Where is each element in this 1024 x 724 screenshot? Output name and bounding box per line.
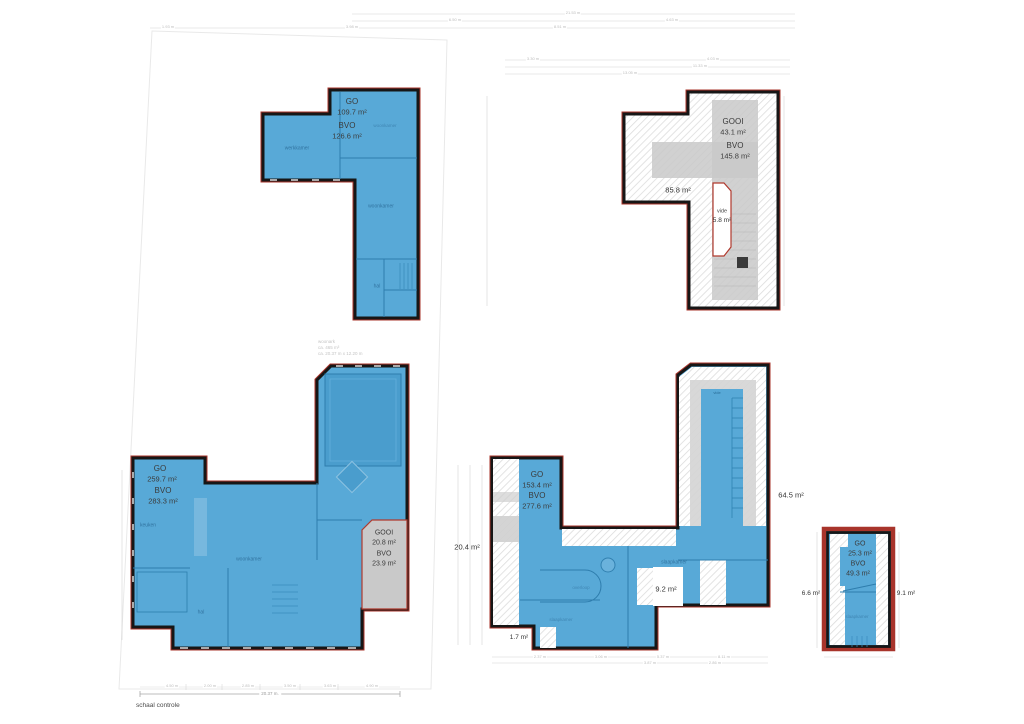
p3-bvo-value: 283.3 m² xyxy=(148,497,178,505)
dim-label: 8.51 m xyxy=(553,25,567,29)
p5-area-right: 9.1 m² xyxy=(897,591,915,598)
dim-label: 6.50 m xyxy=(448,18,462,22)
sloped-roof-strip xyxy=(876,534,888,645)
p3-go-label: GO xyxy=(154,465,166,473)
dim-label: 3.87 m xyxy=(643,661,657,665)
dim-label: 2.37 m xyxy=(533,655,547,659)
p4-room-slaapkamer-l: slaapkamer xyxy=(549,618,572,623)
dim-label: 3.30 m xyxy=(526,57,540,61)
dim-label: 11.33 m xyxy=(692,64,708,68)
p3-room-woonkamer: woonkamer xyxy=(236,558,262,563)
p1-room-hal: hal xyxy=(374,285,381,290)
p4-bvo-label: BVO xyxy=(529,492,546,500)
dim-label: 2.86 m xyxy=(708,661,722,665)
p4-bvo-value: 277.6 m² xyxy=(522,502,552,510)
p5-room-slaapkamer: slaapkamer xyxy=(845,615,868,620)
scale-segment-label: 3.63 m xyxy=(323,684,337,688)
dim-label: 4.63 m xyxy=(665,18,679,22)
p3-bvo-label: BVO xyxy=(155,487,172,495)
p1-room-werkkamer: werkkamer xyxy=(285,147,309,152)
p4-area-bottom: 1.7 m² xyxy=(510,635,528,642)
scale-segment-label: 4.50 m xyxy=(165,684,179,688)
p1-room-woonkamer: woonkamer xyxy=(368,205,394,210)
p2-vide-value: 5.8 m² xyxy=(713,218,731,225)
kitchen-island xyxy=(194,498,207,556)
p2-bvo-label: BVO xyxy=(727,142,744,150)
p3-note-2: ca. 465 m³ xyxy=(318,346,339,351)
dim-label: 21.53 m xyxy=(565,11,581,15)
p1-go-label: GO xyxy=(346,98,358,106)
p3-gooi-label: GOOI xyxy=(375,530,393,537)
p4-area-left: 20.4 m² xyxy=(454,543,479,551)
p3-go-value: 259.7 m² xyxy=(147,475,177,483)
floor-plan-3 xyxy=(133,366,407,648)
scale-total-label: 20.37 m. xyxy=(259,692,281,697)
chimney xyxy=(737,257,748,268)
p3-gooi-bvo-value: 23.9 m² xyxy=(372,561,396,568)
dim-label: 5.37 m xyxy=(656,655,670,659)
p3-room-keuken: keuken xyxy=(140,524,156,529)
p5-go-value: 25.3 m² xyxy=(848,551,872,558)
p3-gooi-bvo-label: BVO xyxy=(377,551,392,558)
p1-bvo-label: BVO xyxy=(339,122,356,130)
floorplan-sheet: GO 109.7 m² BVO 126.6 m² woonkamer werkk… xyxy=(0,0,1024,724)
p5-area-left: 6.6 m² xyxy=(802,591,820,598)
floor-plan-2 xyxy=(624,92,778,308)
p4-room-slaapkamer-r: slaapkamer xyxy=(661,561,687,566)
p2-bvo-value: 145.8 m² xyxy=(720,152,750,160)
p3-gooi-value: 20.8 m² xyxy=(372,540,396,547)
p1-bvo-value: 126.6 m² xyxy=(332,132,362,140)
p4-room-overloop: overloop xyxy=(572,586,589,591)
p2-gooi-label: GOOI xyxy=(723,118,744,126)
void-strip xyxy=(701,389,743,526)
scale-segment-label: 2.00 m xyxy=(203,684,217,688)
p3-room-hal: hal xyxy=(198,611,205,616)
p5-go-label: GO xyxy=(855,541,866,548)
p4-area-right: 64.5 m² xyxy=(778,491,803,499)
p5-bvo-value: 49.3 m² xyxy=(846,571,870,578)
scale-segment-label: 2.85 m xyxy=(241,684,255,688)
dim-label: 3.06 m xyxy=(594,655,608,659)
p3-note-3: ca. 20.37 m x 12.20 m xyxy=(318,352,363,357)
p4-room-vide: vide xyxy=(713,391,720,395)
p2-gooi-value: 43.1 m² xyxy=(720,128,745,136)
pool xyxy=(325,374,401,466)
p1-room-woonkamer-top: woonkamer xyxy=(373,124,396,129)
p2-area-value: 85.8 m² xyxy=(665,186,690,194)
dim-label: 8.11 m xyxy=(717,655,731,659)
p4-go-value: 153.4 m² xyxy=(522,481,552,489)
p1-go-value: 109.7 m² xyxy=(337,108,367,116)
p2-vide-label: vide xyxy=(717,209,727,215)
scale-caption: schaal controle xyxy=(136,703,180,710)
dim-label: 3.98 m xyxy=(345,25,359,29)
p4-go-label: GO xyxy=(531,471,543,479)
dim-label: 13.05 m xyxy=(622,71,638,75)
p5-bvo-label: BVO xyxy=(851,561,866,568)
scale-segment-label: 4.90 m xyxy=(365,684,379,688)
dim-label: 4.03 m xyxy=(706,57,720,61)
p4-area-notch: 9.2 m² xyxy=(655,585,676,593)
scale-segment-label: 3.50 m xyxy=(283,684,297,688)
dim-label: 1.93 m xyxy=(161,25,175,29)
floorplan-drawing xyxy=(0,0,1024,724)
p3-note-1: woonark xyxy=(318,340,335,345)
